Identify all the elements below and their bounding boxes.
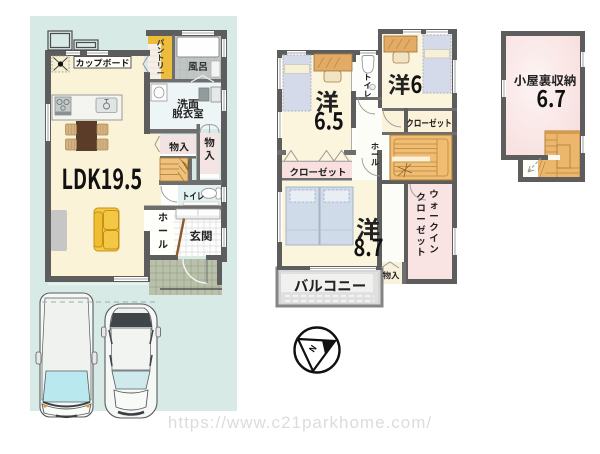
svg-text:https://www.c21parkhome.com/: https://www.c21parkhome.com/ xyxy=(168,413,432,432)
